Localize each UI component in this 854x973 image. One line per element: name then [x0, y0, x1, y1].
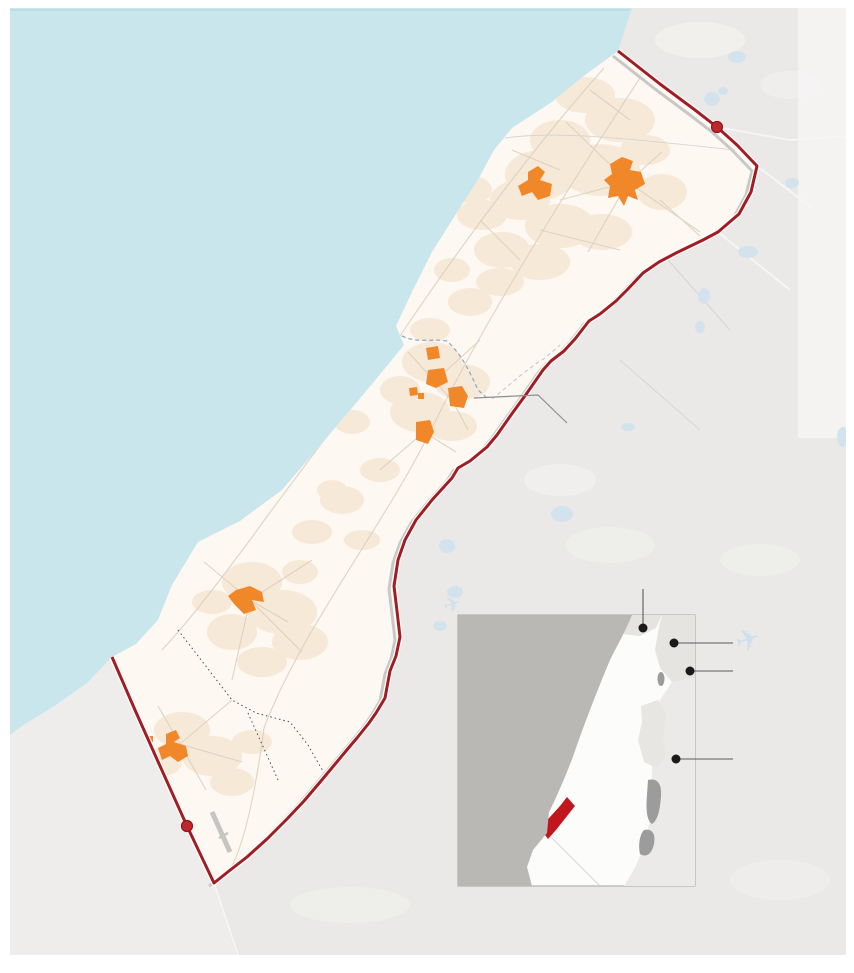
callout-dot — [672, 755, 681, 764]
locator-inset-map — [458, 589, 733, 886]
callout-dot — [639, 624, 648, 633]
map-canvas: ✈ ✈ — [0, 0, 854, 973]
callout-dot — [670, 639, 679, 648]
callout-dot — [686, 667, 695, 676]
border-crossing-dot-south — [182, 821, 193, 832]
border-crossing-dot-north — [712, 122, 723, 133]
inset-sea-of-galilee — [658, 672, 665, 686]
gaza-strip-map: ✈ ✈ — [0, 0, 854, 973]
